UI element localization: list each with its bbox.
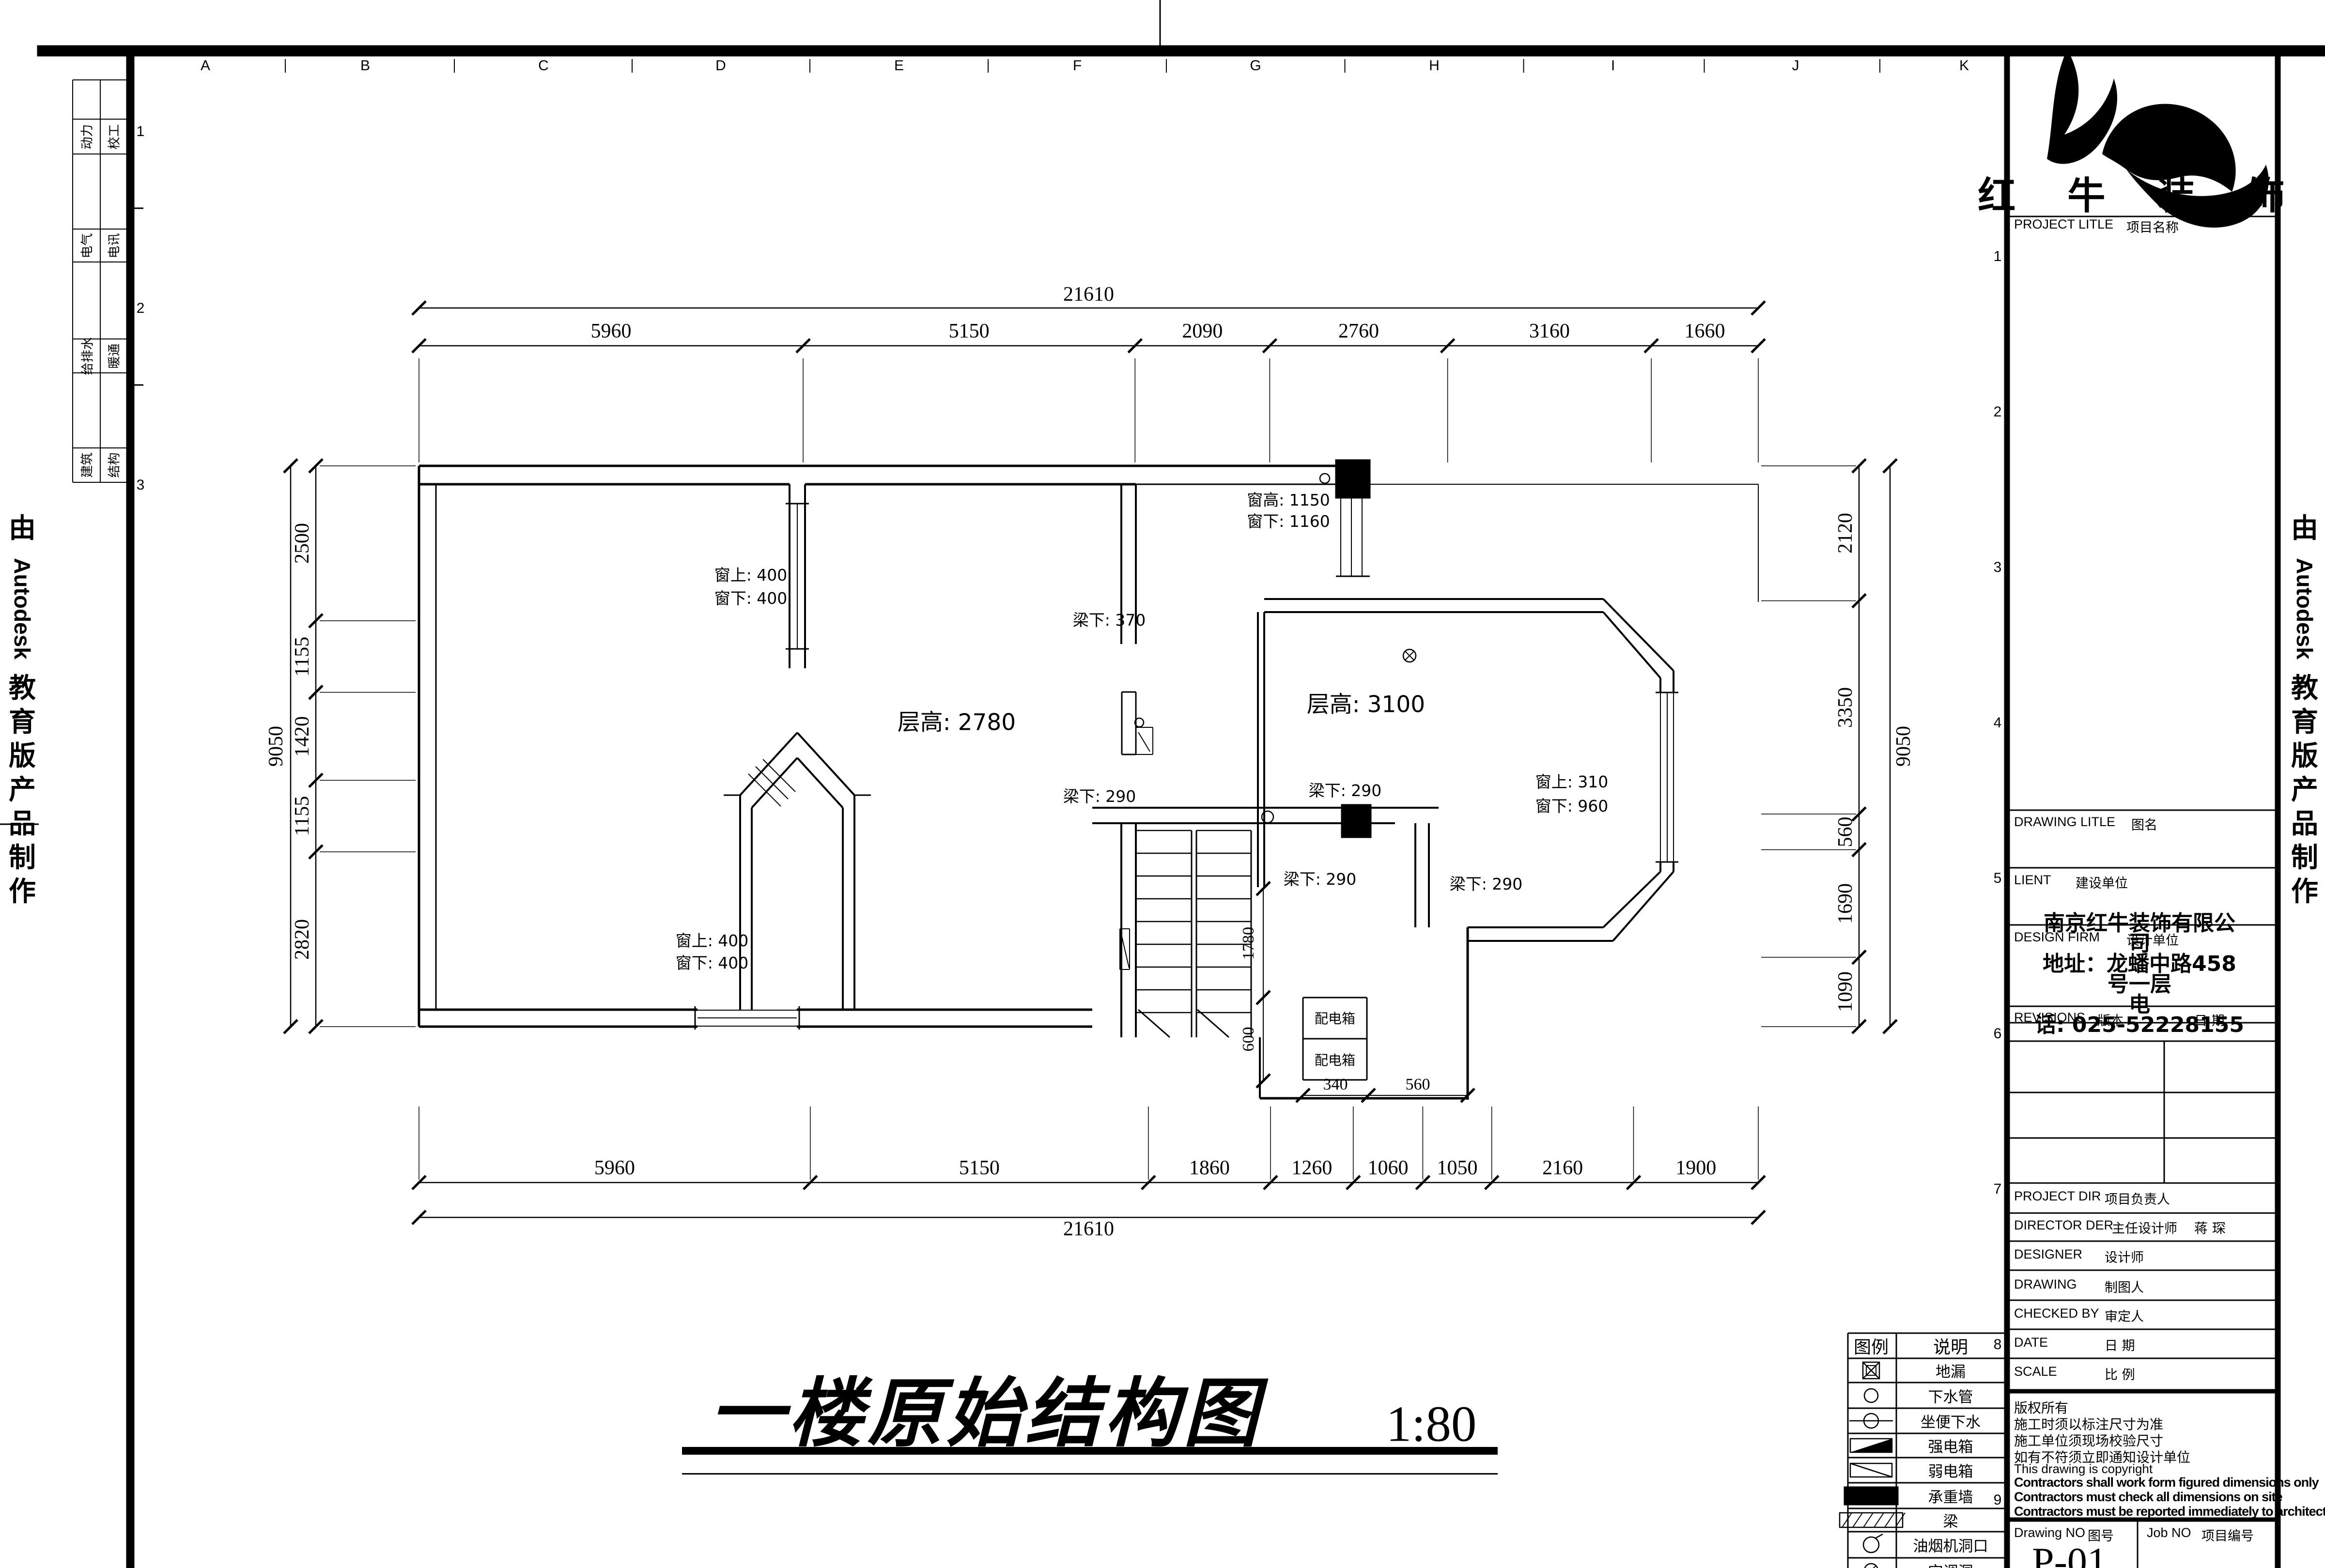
legend-label: 弱电箱 (1928, 1460, 1973, 1481)
dimension-value: 9050 (1892, 726, 1915, 767)
watermark-char: 育 (9, 707, 36, 738)
grid-letter: B (360, 58, 370, 74)
discipline-label: 暖通 (105, 343, 123, 369)
tb-checked-en: CHECKED BY (2014, 1306, 2099, 1321)
tb-client-en: LIENT (2014, 873, 2051, 888)
tb-drawing-title-cn: 图名 (2131, 815, 2157, 833)
title-underline-thin (682, 1473, 1498, 1475)
grid-number: 6 (1994, 1026, 2002, 1042)
watermark-char: 版 (9, 741, 36, 772)
dimension-value: 1060 (1368, 1156, 1409, 1180)
watermark-char: 产 (2291, 775, 2318, 806)
discipline-cell: 电讯 (100, 229, 127, 262)
watermark-char: 由 (2291, 513, 2318, 544)
discipline-label: 结构 (105, 452, 123, 477)
grid-letter: A (201, 58, 210, 74)
grid-number: 9 (1994, 1492, 2002, 1508)
legend-header-symbol: 图例 (1854, 1333, 1889, 1358)
brand-name: 红 牛 装 饰 (1978, 166, 2304, 220)
plan-annotation: 窗上: 310 (1535, 769, 1609, 792)
copyright-line: Contractors must be reported immediately… (2014, 1504, 2325, 1519)
dimension-value: 1690 (1834, 883, 1857, 924)
legend-header-desc: 说明 (1933, 1333, 1968, 1358)
legend-label: 下水管 (1928, 1385, 1973, 1407)
dimension-value: 2090 (1182, 320, 1223, 343)
plan-annotation: 窗下: 960 (1535, 793, 1609, 816)
dimension-value: 2760 (1338, 320, 1379, 343)
dimension-value: 5150 (949, 320, 990, 343)
tb-drawing-cn: 制图人 (2105, 1277, 2144, 1296)
watermark-char: 育 (2291, 707, 2318, 738)
dimension-value: 1155 (291, 637, 314, 676)
cad-linework (0, 0, 2325, 1568)
grid-letter: D (715, 58, 726, 74)
grid-number: 5 (1994, 870, 2002, 887)
legend-table (1840, 1333, 2005, 1568)
dimension-value: 9050 (264, 726, 288, 767)
dimension-value: 21610 (1063, 1217, 1114, 1241)
title-underline-thick (682, 1447, 1498, 1455)
grid-letter: E (894, 58, 904, 74)
discipline-label: 动力 (77, 124, 95, 149)
plan-annotation: 梁下: 370 (1073, 607, 1146, 630)
drawing-number: P-01 (2032, 1539, 2107, 1568)
tb-designer-cn: 设计师 (2105, 1247, 2144, 1266)
dimension-value: 1900 (1675, 1156, 1716, 1180)
dimension-value: 1660 (1685, 320, 1725, 343)
dimension-value: 1260 (1291, 1156, 1332, 1180)
discipline-cell: 结构 (100, 448, 127, 482)
autodesk-watermark-left: 由Autodesk教育版产品制作 (2, 513, 43, 907)
dimension-value: 2120 (1834, 513, 1857, 553)
legend-label: 承重墙 (1928, 1485, 1973, 1507)
drawing-scale: 1:80 (1386, 1395, 1477, 1453)
grid-number: 4 (1994, 715, 2002, 731)
grid-number: 3 (1994, 559, 2002, 576)
plan-annotation: 窗高: 1150 (1247, 487, 1330, 510)
dimension-value: 1050 (1437, 1156, 1478, 1180)
plan-annotation: 窗下: 1160 (1247, 508, 1330, 532)
discipline-label: 建筑 (77, 452, 95, 477)
grid-number: 7 (1994, 1181, 2002, 1198)
plan-annotation: 梁下: 290 (1309, 778, 1382, 801)
dimension-value: 560 (1834, 816, 1857, 847)
tb-director-cn: 主任设计师 (2112, 1218, 2177, 1237)
dimension-value: 2500 (291, 523, 314, 564)
grid-number: 8 (1994, 1337, 2002, 1353)
legend-label: 油烟机洞口 (1913, 1534, 1988, 1556)
dimension-value: 3350 (1834, 687, 1857, 728)
dimension-value: 1155 (291, 796, 314, 836)
watermark-char: 教 (2291, 673, 2318, 704)
drawing-no-label-en: Drawing NO (2014, 1525, 2085, 1540)
watermark-char: 由 (9, 513, 36, 544)
watermark-char: 制 (2291, 843, 2318, 874)
discipline-label: 校工 (105, 124, 123, 149)
dimension-value: 1780 (1240, 927, 1258, 960)
tb-director-en: DIRECTOR DER (2014, 1218, 2113, 1233)
autodesk-wordmark: Autodesk (2292, 558, 2318, 660)
firm-phone-line2: 话: 025-52228155 (2035, 1007, 2244, 1038)
tb-project-dir-cn: 项目负责人 (2105, 1189, 2170, 1208)
dimension-value: 2160 (1542, 1156, 1583, 1180)
drawing-title: 一楼原始结构图 (710, 1353, 1262, 1461)
plan-annotation: 窗下: 400 (714, 585, 788, 609)
job-no-label-en: Job NO (2147, 1525, 2191, 1540)
tb-date-cn: 日 期 (2105, 1335, 2135, 1354)
copyright-line: This drawing is copyright (2014, 1461, 2153, 1476)
discipline-cell: 动力 (73, 119, 100, 154)
plan-annotation: 梁下: 290 (1063, 784, 1136, 807)
grid-letter: H (1429, 58, 1440, 74)
tb-checked-cn: 审定人 (2105, 1306, 2144, 1325)
cad-sheet: 由Autodesk教育版产品制作 由Autodesk教育版产品制作 一楼原始结构… (0, 0, 2325, 1568)
copyright-line: Contractors shall work form figured dime… (2014, 1475, 2319, 1490)
tb-date-en: DATE (2014, 1335, 2048, 1350)
discipline-cell: 暖通 (100, 339, 127, 373)
plan-annotation: 配电箱 (1315, 1008, 1355, 1028)
grid-letter: C (538, 58, 549, 74)
legend-label: 坐便下水 (1921, 1410, 1981, 1432)
grid-letter: J (1792, 58, 1799, 74)
tb-designer-en: DESIGNER (2014, 1247, 2082, 1262)
plan-annotation: 层高: 2780 (898, 704, 1016, 737)
watermark-char: 产 (9, 775, 36, 806)
tb-scale-en: SCALE (2014, 1364, 2057, 1379)
autodesk-wordmark: Autodesk (9, 558, 35, 660)
dimension-value: 21610 (1063, 283, 1114, 306)
plan-annotation: 层高: 3100 (1307, 686, 1425, 719)
autodesk-watermark-right: 由Autodesk教育版产品制作 (2284, 513, 2325, 907)
legend-label: 空调洞 (1928, 1560, 1973, 1568)
discipline-label: 给排水 (77, 337, 95, 375)
dimension-value: 2820 (291, 919, 314, 960)
tb-scale-cn: 比 例 (2105, 1364, 2135, 1383)
tb-project-title-en: PROJECT LITLE (2014, 217, 2113, 232)
grid-number: 1 (137, 123, 145, 140)
grid-letter: I (1611, 58, 1615, 74)
dimension-value: 5960 (594, 1156, 635, 1180)
dimension-value: 1860 (1189, 1156, 1230, 1180)
plan-annotation: 窗上: 400 (714, 562, 788, 585)
dimension-value: 560 (1406, 1076, 1430, 1094)
watermark-char: 教 (9, 673, 36, 704)
discipline-cell: 给排水 (73, 339, 100, 373)
tb-director-value: 蒋 琛 (2194, 1218, 2226, 1237)
dimension-value: 5960 (591, 320, 632, 343)
grid-letter: G (1250, 58, 1261, 74)
legend-label: 强电箱 (1928, 1435, 1973, 1457)
job-no-label-cn: 项目编号 (2201, 1525, 2254, 1544)
discipline-label: 电气 (77, 233, 95, 258)
plan-annotation: 窗下: 400 (676, 950, 749, 973)
discipline-cell: 电气 (73, 229, 100, 262)
plan-annotation: 配电箱 (1315, 1050, 1355, 1069)
watermark-char: 作 (2291, 876, 2318, 907)
watermark-char: 作 (9, 876, 36, 907)
grid-letter: K (1959, 58, 1969, 74)
dimension-value: 600 (1240, 1027, 1258, 1052)
tb-drawing-title-en: DRAWING LITLE (2014, 815, 2115, 830)
plan-annotation: 梁下: 290 (1450, 871, 1523, 894)
watermark-char: 制 (9, 843, 36, 874)
watermark-char: 版 (2291, 741, 2318, 772)
dimension-value: 1420 (291, 716, 314, 757)
grid-number: 2 (137, 300, 145, 317)
tb-project-dir-en: PROJECT DIR (2014, 1189, 2101, 1204)
plan-annotation: 窗上: 400 (676, 928, 749, 951)
plan-annotation: 梁下: 290 (1284, 866, 1357, 890)
tb-project-title-cn: 项目名称 (2126, 217, 2179, 236)
legend-label: 梁 (1943, 1509, 1958, 1531)
copyright-line: Contractors must check all dimensions on… (2014, 1490, 2282, 1505)
watermark-char: 品 (9, 809, 36, 840)
grid-ticks (285, 59, 1880, 73)
discipline-label: 电讯 (105, 233, 123, 258)
dimension-value: 3160 (1529, 320, 1570, 343)
dimension-value: 340 (1323, 1076, 1348, 1094)
tb-client-cn: 建设单位 (2076, 873, 2128, 892)
grid-number: 2 (1994, 404, 2002, 420)
grid-number: 1 (1994, 248, 2002, 265)
discipline-cell: 建筑 (73, 448, 100, 482)
watermark-char: 品 (2291, 809, 2318, 840)
legend-label: 地漏 (1936, 1360, 1966, 1382)
tb-drawing-en: DRAWING (2014, 1277, 2077, 1292)
grid-letter: F (1073, 58, 1082, 74)
discipline-cell: 校工 (100, 119, 127, 154)
dimension-value: 5150 (959, 1156, 1000, 1180)
dimension-value: 1090 (1834, 971, 1857, 1012)
dimension-chains (284, 301, 1897, 1224)
grid-number: 3 (137, 477, 145, 493)
